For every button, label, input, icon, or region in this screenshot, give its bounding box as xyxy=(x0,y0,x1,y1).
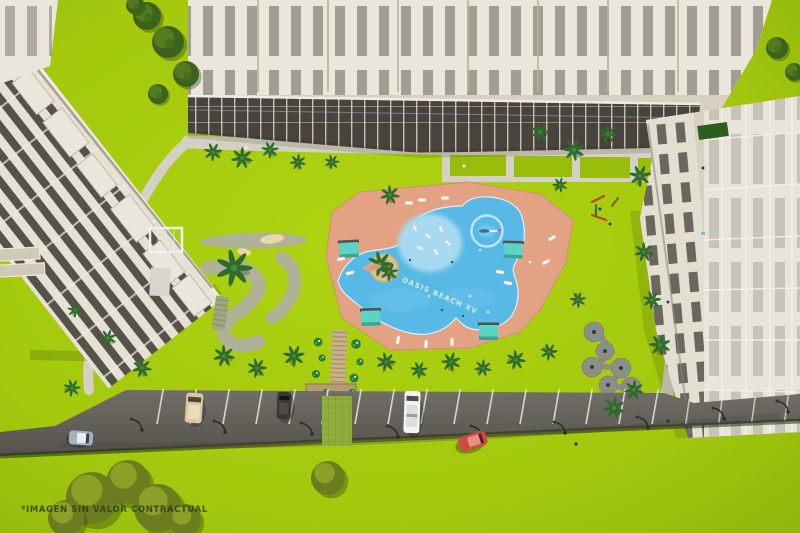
cabana xyxy=(360,308,382,326)
grass-pavers xyxy=(322,396,352,446)
watermark-text: *IMAGEN SIN VALOR CONTRACTUAL xyxy=(21,505,208,515)
aerial-render: OASIS BEACH XV xyxy=(0,0,800,533)
parking-bay-lines xyxy=(132,389,660,424)
cabana xyxy=(478,323,499,341)
cabana xyxy=(502,240,524,258)
shallow-beach-area xyxy=(398,214,462,272)
scene-svg: OASIS BEACH XV xyxy=(0,0,800,533)
cabana xyxy=(338,239,360,258)
